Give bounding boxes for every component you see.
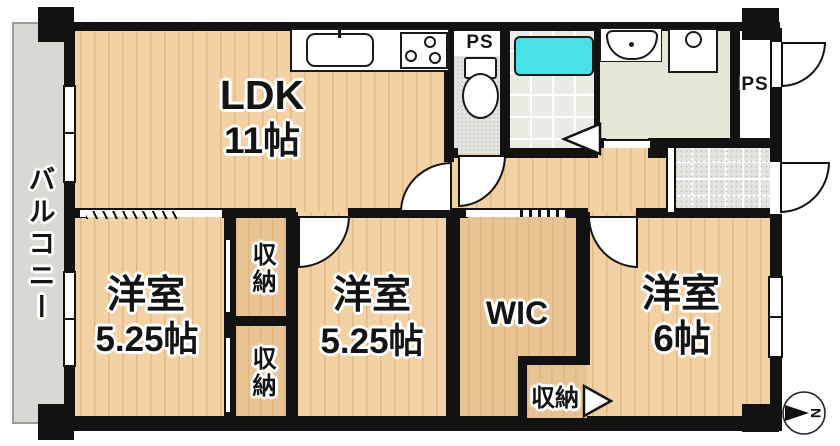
- bedroom-left-size: 5.25帖: [62, 318, 232, 360]
- bedroom-left-name: 洋室: [68, 272, 224, 318]
- stove-burner-2: [405, 50, 417, 62]
- ldk-size: 11帖: [177, 118, 347, 162]
- ps-entry-label: PS: [734, 70, 776, 98]
- entry-tile-floor: [674, 144, 776, 214]
- wall-mid-e: [636, 208, 782, 218]
- bedroom-right-name: 洋室: [606, 272, 756, 316]
- door-front-entry: [780, 162, 830, 213]
- ps-toilet-label: PS: [450, 28, 510, 56]
- column-top-left: [38, 7, 74, 42]
- closet-right-door-arrow: [582, 384, 614, 418]
- door-ps-meter: [781, 42, 826, 87]
- bedroom-middle-name: 洋室: [298, 272, 446, 318]
- wall-bottom: [64, 416, 782, 431]
- washbasin-drain: [629, 42, 634, 47]
- storage-right-label: 収納: [524, 384, 586, 414]
- ldk-name: LDK: [177, 72, 347, 118]
- bedroom-right-size: 6帖: [612, 316, 752, 360]
- bathroom-folding-door-icon: [558, 122, 602, 156]
- floorplan-canvas: N バルコニー LDK 11帖 洋室 5.25帖 洋室 5.25帖 洋室 6帖 …: [0, 0, 840, 446]
- wall-wic-right: [576, 212, 590, 362]
- entry-step-edge: [666, 148, 676, 212]
- compass: N: [778, 388, 834, 442]
- column-bottom-right: [742, 404, 779, 432]
- wall-under-toilet-a: [444, 148, 458, 158]
- column-bottom-left: [38, 404, 74, 440]
- balcony-label: バルコニー: [12, 140, 66, 350]
- compass-north-label: N: [808, 408, 824, 418]
- column-top-right: [742, 8, 779, 40]
- wic-label: WIC: [458, 292, 576, 334]
- kitchen-faucet: [338, 26, 341, 38]
- opening-wic-accordion: [520, 209, 566, 217]
- bedroom-middle-size: 5.25帖: [288, 320, 456, 362]
- opening-washroom-entry: [604, 139, 650, 148]
- wall-storage-divider: [224, 316, 298, 326]
- toilet-bowl: [462, 73, 499, 119]
- stove-burner-3: [429, 52, 441, 64]
- storage-top-label: 収納: [228, 222, 294, 316]
- storage-bottom-label: 収納: [228, 328, 294, 418]
- opening-ticks-left: [86, 211, 180, 219]
- window-bedroom-right-mullion: [768, 316, 783, 318]
- washing-machine-tap: [685, 31, 702, 48]
- bathtub: [514, 36, 594, 76]
- kitchen-sink: [306, 33, 374, 67]
- stove-burner-1: [424, 36, 436, 48]
- window-ldk-mullion: [63, 132, 76, 134]
- wall-closet-right-top: [518, 356, 590, 365]
